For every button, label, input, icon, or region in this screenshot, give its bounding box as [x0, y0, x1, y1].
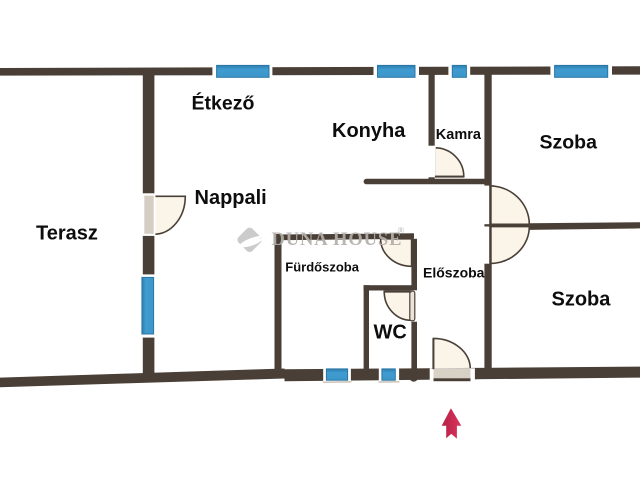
svg-text:Előszoba: Előszoba [423, 265, 485, 281]
svg-text:Fürdőszoba: Fürdőszoba [285, 260, 359, 275]
svg-text:Nappali: Nappali [195, 187, 267, 209]
svg-text:Étkező: Étkező [192, 92, 255, 115]
svg-text:DUNA HOUSE: DUNA HOUSE [272, 230, 403, 250]
svg-text:®: ® [398, 226, 405, 236]
svg-text:WC: WC [374, 322, 407, 344]
svg-text:Konyha: Konyha [332, 120, 406, 142]
svg-text:Szoba: Szoba [552, 289, 612, 311]
svg-text:Kamra: Kamra [436, 127, 482, 143]
svg-text:Terasz: Terasz [36, 223, 98, 245]
svg-text:Szoba: Szoba [540, 132, 598, 154]
